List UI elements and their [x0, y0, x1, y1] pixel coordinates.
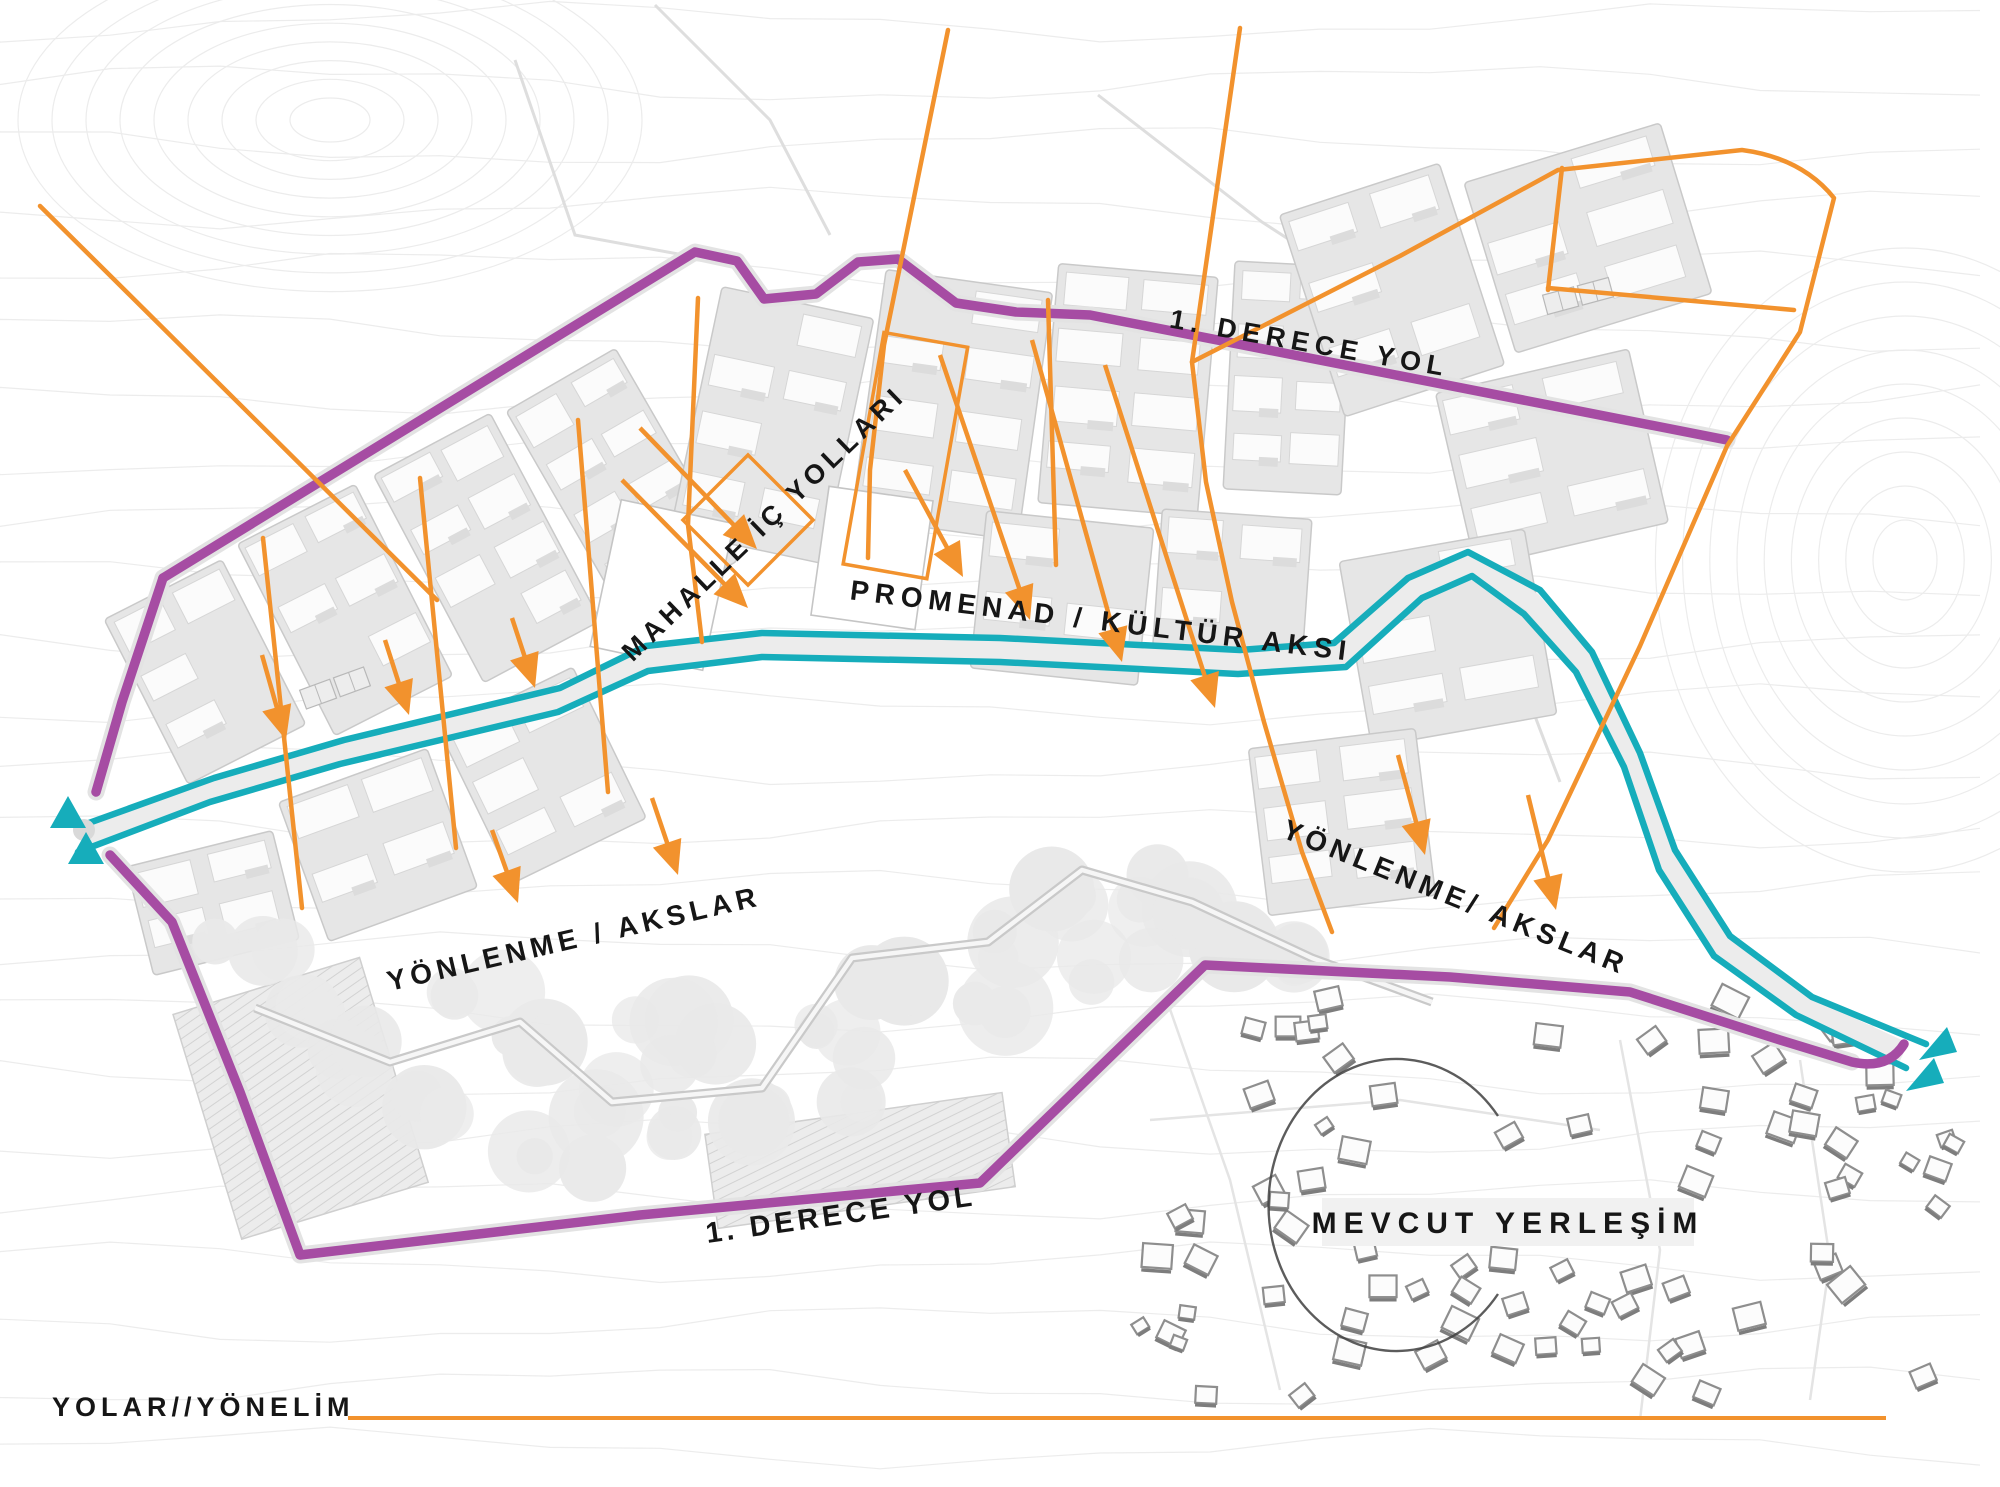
house-footprint [1370, 1083, 1398, 1106]
settlement-house [1178, 1305, 1196, 1321]
house-footprint [1495, 1122, 1523, 1148]
contour-lines [0, 0, 2000, 1487]
settlement-house [1369, 1275, 1396, 1299]
contour-line [52, 0, 608, 273]
house-shadow-edge [1195, 1405, 1216, 1406]
promenade-arrow-icon [1906, 1058, 1944, 1091]
contour-line [0, 128, 1980, 165]
house-footprint [1637, 1026, 1666, 1054]
house-shadow-edge [1175, 1234, 1203, 1236]
contour-line [18, 0, 642, 292]
settlement-house [1550, 1259, 1575, 1283]
settlement-house [1559, 1311, 1586, 1338]
house-footprint [1856, 1095, 1876, 1112]
settlement-house [1910, 1364, 1938, 1391]
building-wing [1259, 457, 1279, 467]
settlement-house [1244, 1081, 1276, 1111]
settlement-house [1698, 1028, 1729, 1056]
contour-line [154, 23, 506, 217]
settlement-house [1535, 1337, 1557, 1357]
house-shadow-edge [1700, 1055, 1730, 1057]
house-footprint [1308, 1014, 1327, 1030]
existing-settlement-label: MEVCUT YERLEŞİM [1312, 1207, 1705, 1240]
contour-line [1791, 418, 2000, 702]
building-footprint [1132, 393, 1199, 431]
settlement-house [1630, 1364, 1665, 1398]
tree-canopy [192, 919, 238, 965]
settlement-house [1440, 1306, 1479, 1343]
house-footprint [1452, 1277, 1480, 1304]
settlement-house [1263, 1286, 1285, 1306]
settlement-house [1451, 1277, 1481, 1306]
settlement-house [1700, 1087, 1729, 1114]
house-footprint [1534, 1023, 1563, 1048]
building-footprint [1052, 386, 1119, 427]
tree-canopy [640, 1035, 699, 1094]
tree-canopy [979, 986, 1031, 1038]
settlement-house [1585, 1292, 1610, 1316]
settlement-house [1370, 1083, 1398, 1109]
house-footprint [1489, 1247, 1517, 1270]
house-footprint [1560, 1311, 1586, 1336]
house-footprint [1451, 1254, 1476, 1278]
settlement-house [1663, 1276, 1691, 1303]
house-footprint [1698, 1028, 1729, 1053]
settlement-house [1621, 1265, 1653, 1295]
house-footprint [1263, 1286, 1285, 1304]
tree-canopy [420, 1087, 474, 1141]
contour-line [256, 79, 404, 160]
settlement-house [1269, 1192, 1289, 1210]
building-wing [1259, 408, 1279, 418]
settlement-house [1733, 1302, 1767, 1334]
masterplan-diagram: 1. DERECE YOL MAHALLE İÇ YOLLARI PROMENA… [0, 0, 2000, 1487]
settlement-house [1637, 1026, 1668, 1056]
settlement-house [1241, 1017, 1266, 1040]
building-footprint [1056, 328, 1123, 366]
house-shadow-edge [1536, 1355, 1556, 1356]
house-footprint [1269, 1192, 1289, 1208]
settlement-house [1696, 1131, 1721, 1155]
tree-canopy [718, 1085, 789, 1156]
building-blocks [104, 123, 1712, 976]
house-footprint [1369, 1275, 1396, 1297]
contour-line [86, 0, 574, 254]
building-footprint [1289, 433, 1339, 467]
settlement-house [1315, 1117, 1334, 1136]
house-shadow-edge [1141, 1270, 1171, 1272]
building-footprint [1047, 441, 1111, 473]
house-footprint [1338, 1136, 1370, 1164]
settlement-house [1825, 1177, 1850, 1201]
settlement-house [1308, 1014, 1328, 1032]
building-footprint [1233, 375, 1283, 413]
tree-canopy [228, 916, 298, 986]
settlement-house [1314, 986, 1343, 1013]
tree-canopy [612, 996, 659, 1043]
settlement-house [1489, 1247, 1517, 1273]
settlement-house [1195, 1386, 1217, 1406]
city-block [1038, 263, 1218, 516]
settlement-house [1131, 1317, 1150, 1335]
axis-arrow [652, 798, 681, 875]
tree-canopy [647, 1114, 693, 1160]
contour-line [1873, 520, 1937, 600]
house-shadow-edge [1178, 1319, 1194, 1321]
house-shadow-edge [1265, 1304, 1285, 1306]
house-footprint [1582, 1338, 1600, 1353]
settlement-house [1338, 1136, 1371, 1167]
axis-arrow [1528, 795, 1563, 910]
contour-line [222, 61, 438, 180]
building-footprint [1241, 271, 1291, 302]
house-footprint [1535, 1337, 1556, 1355]
building-footprint [1240, 525, 1302, 563]
settlement-house [1273, 1210, 1309, 1245]
settlement-house [1451, 1254, 1478, 1280]
building-footprint [1255, 750, 1320, 789]
tree-canopy [833, 1027, 896, 1090]
building-wing [1272, 557, 1296, 568]
house-footprint [1195, 1386, 1217, 1404]
house-footprint [1632, 1364, 1665, 1396]
settlement-house [1184, 1244, 1218, 1277]
masterplan-canvas: 1. DERECE YOL MAHALLE İÇ YOLLARI PROMENA… [0, 0, 2000, 1487]
settlement-house [1856, 1095, 1876, 1114]
settlement-house [1612, 1293, 1640, 1320]
house-footprint [1141, 1243, 1172, 1269]
settlement-house [1692, 1380, 1720, 1407]
house-footprint [1298, 1168, 1326, 1192]
house-footprint [1811, 1244, 1833, 1262]
sheet-title: YOLAR//YÖNELİM [52, 1392, 355, 1423]
settlement-house [1811, 1244, 1834, 1264]
settlement-houses [1131, 984, 1964, 1409]
axis-arrowhead-icon [493, 866, 521, 903]
title-rule [348, 1416, 1886, 1420]
house-shadow-edge [1583, 1353, 1600, 1354]
house-footprint [1700, 1087, 1729, 1112]
settlement-house [1533, 1023, 1563, 1050]
settlement-house [1495, 1122, 1524, 1150]
settlement-house [1881, 1090, 1901, 1109]
settlement-house [1502, 1292, 1529, 1317]
house-shadow-edge [1269, 1209, 1288, 1210]
settlement-house [1678, 1166, 1713, 1200]
house-footprint [1274, 1210, 1308, 1243]
settlement-house [1341, 1308, 1368, 1334]
settlement-house [1169, 1335, 1187, 1352]
axis-arrowhead-icon [1533, 873, 1562, 910]
tree-canopy [1069, 959, 1115, 1005]
contour-line [0, 1, 1980, 42]
contour-line [1737, 350, 2000, 770]
house-footprint [1179, 1305, 1196, 1320]
axis-arrow-shaft [652, 798, 670, 850]
settlement-house [1824, 1127, 1858, 1160]
settlement-house [1789, 1084, 1817, 1111]
settlement-house [1141, 1243, 1173, 1272]
contour-line [1846, 486, 1964, 634]
house-footprint [1926, 1195, 1949, 1218]
building-wing [1196, 550, 1218, 560]
building-footprint [1064, 272, 1129, 310]
promenade-arrow-icon [50, 796, 86, 828]
house-footprint [1825, 1127, 1858, 1158]
settlement-house [1925, 1195, 1949, 1219]
house-footprint [1789, 1110, 1819, 1136]
contour-line [188, 42, 472, 198]
settlement-house [1582, 1338, 1600, 1355]
contour-line [0, 1427, 1980, 1469]
contour-line [290, 98, 370, 142]
settlement-house [1289, 1383, 1315, 1409]
axis-arrowhead-icon [1190, 671, 1219, 708]
settlement-house [1789, 1110, 1820, 1139]
settlement-house [1567, 1114, 1592, 1138]
tree-canopy [488, 1110, 570, 1192]
settlement-house [1899, 1153, 1919, 1173]
settlement-house [1406, 1279, 1429, 1301]
settlement-house [1923, 1156, 1952, 1183]
contour-line [120, 5, 540, 236]
settlement-house [1491, 1334, 1524, 1365]
settlement-house [1298, 1168, 1326, 1194]
